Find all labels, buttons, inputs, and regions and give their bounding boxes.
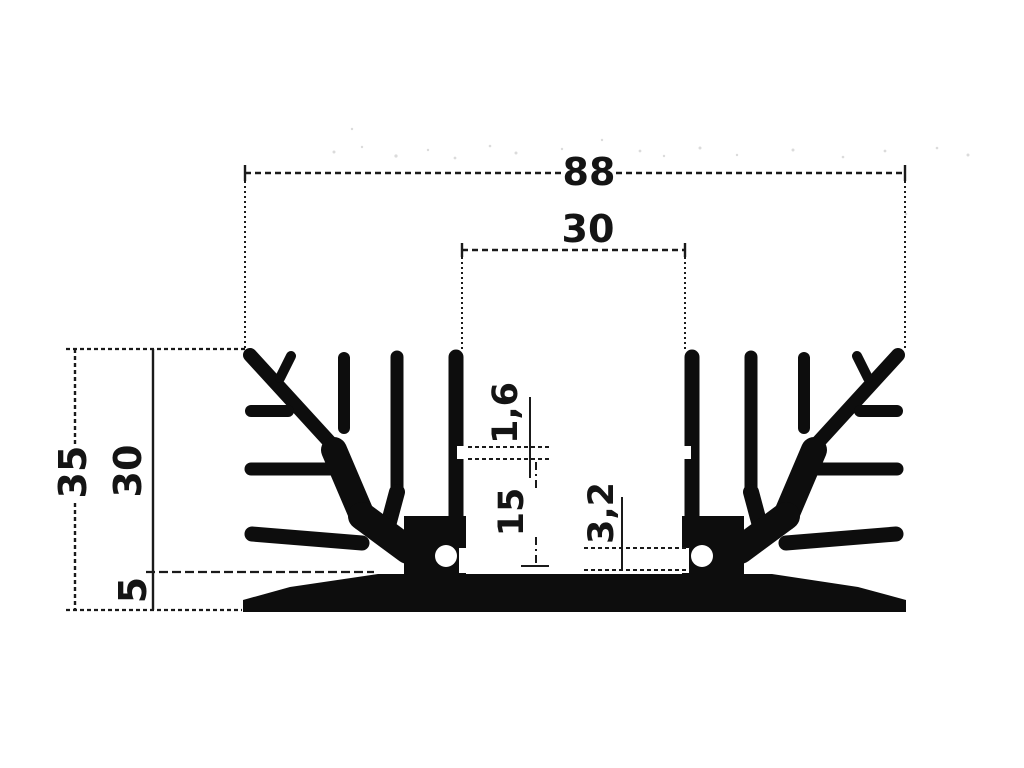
dimension-label-base-thickness: 5 (111, 577, 155, 603)
profile-cutouts (435, 446, 713, 573)
dimension-label-overall-width: 88 (563, 150, 616, 194)
left-fork-fin (280, 356, 291, 378)
left-diagonal-fin (250, 355, 336, 449)
dimension-label-overall-height: 35 (51, 446, 95, 499)
screw-channel-right (691, 545, 713, 567)
channel-slot-left (459, 548, 471, 573)
dimension-label-center-gap: 30 (562, 207, 615, 251)
right-horizontal-fin-3 (786, 534, 896, 543)
dimension-label-cavity-depth: 15 (492, 488, 532, 537)
dimension-label-slot-height: 3,2 (582, 482, 622, 544)
left-post-foot (404, 516, 466, 574)
post-notch-left (457, 446, 465, 459)
paper-noise (333, 128, 970, 216)
heatsink-profile (243, 355, 906, 612)
extension-line (245, 171, 905, 351)
dimension-label-post-notch: 1,6 (486, 382, 526, 444)
right-diagonal-fin (812, 355, 898, 449)
extension-line (462, 247, 685, 351)
base-plate (243, 574, 906, 612)
heatsink-technical-drawing: 88 30 35 30 5 1,6 15 3,2 (0, 0, 1024, 768)
right-fork-fin (857, 356, 868, 378)
left-horizontal-fin-3 (252, 534, 362, 543)
post-notch-right (683, 446, 691, 459)
dimension-label-fin-height: 30 (106, 445, 150, 498)
right-post-foot (682, 516, 744, 574)
dimension-center-gap (462, 243, 685, 351)
drawing-canvas: 88 30 35 30 5 1,6 15 3,2 (0, 0, 1024, 768)
screw-channel-left (435, 545, 457, 567)
